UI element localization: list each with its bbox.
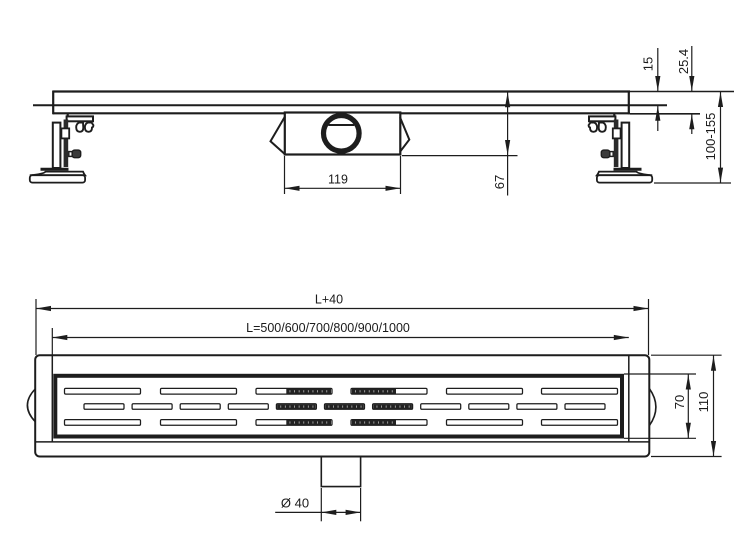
svg-text:25.4: 25.4 [676,49,691,74]
svg-text:70: 70 [672,395,687,409]
svg-text:15: 15 [641,57,656,71]
svg-text:67: 67 [492,175,507,189]
svg-text:Ø 40: Ø 40 [281,496,309,511]
svg-text:110: 110 [696,392,711,413]
svg-text:100-155: 100-155 [703,113,718,161]
svg-text:119: 119 [328,173,348,187]
svg-text:L+40: L+40 [315,293,343,307]
svg-text:L=500/600/700/800/900/1000: L=500/600/700/800/900/1000 [246,321,410,335]
